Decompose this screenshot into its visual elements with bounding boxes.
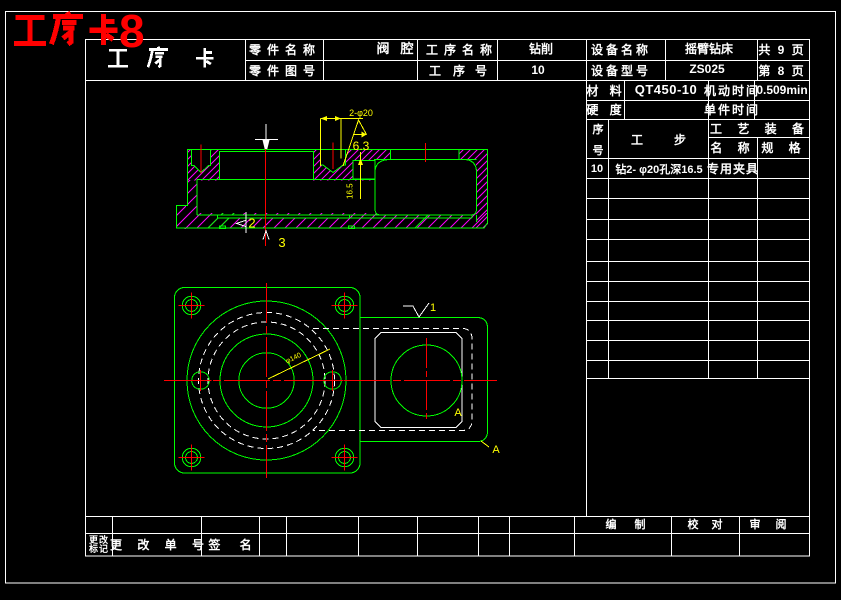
svg-text:零件图号: 零件图号 — [248, 63, 321, 78]
svg-text:摇臂钻床: 摇臂钻床 — [685, 41, 734, 56]
svg-text:10: 10 — [531, 63, 545, 77]
svg-text:16.5: 16.5 — [346, 183, 355, 199]
svg-text:A: A — [454, 407, 462, 419]
svg-text:序: 序 — [453, 63, 465, 78]
svg-text:10: 10 — [591, 163, 603, 175]
svg-text:号: 号 — [593, 144, 604, 157]
svg-text:单件时间: 单件时间 — [704, 102, 760, 117]
svg-text:工 艺 装 备: 工 艺 装 备 — [710, 121, 810, 136]
svg-text:制: 制 — [635, 517, 646, 531]
svg-text:编: 编 — [606, 517, 617, 531]
svg-text:专用夹具: 专用夹具 — [707, 161, 759, 176]
svg-text:序: 序 — [593, 122, 604, 136]
svg-text:3: 3 — [278, 235, 285, 250]
svg-text:第 8 页: 第 8 页 — [758, 63, 805, 78]
svg-text:共 9 页: 共 9 页 — [758, 42, 805, 57]
svg-text:QT450-10: QT450-10 — [635, 82, 698, 97]
svg-text:对: 对 — [712, 517, 723, 531]
svg-text:2-φ20: 2-φ20 — [349, 108, 373, 118]
svg-text:号: 号 — [475, 63, 487, 78]
svg-text:标记: 标记 — [88, 543, 109, 554]
svg-text:A: A — [492, 444, 500, 456]
svg-text:腔: 腔 — [399, 41, 413, 56]
svg-text:硬 度: 硬 度 — [586, 102, 625, 117]
svg-text:签 名: 签 名 — [207, 537, 259, 552]
svg-text:工序名称: 工序名称 — [426, 42, 498, 57]
svg-text:钻2- φ20孔深16.5: 钻2- φ20孔深16.5 — [615, 162, 702, 176]
svg-text:阅: 阅 — [776, 517, 787, 531]
svg-text:机动时间: 机动时间 — [704, 83, 760, 98]
svg-text:0.509min: 0.509min — [756, 83, 807, 97]
svg-text:设备型号: 设备型号 — [591, 63, 651, 78]
svg-text:6.3: 6.3 — [353, 139, 370, 153]
svg-text:阀: 阀 — [376, 41, 389, 56]
svg-text:钻削: 钻削 — [529, 41, 553, 56]
svg-text:更 改 单 号: 更 改 单 号 — [110, 537, 210, 552]
svg-text:步: 步 — [674, 132, 686, 147]
svg-text:规 格: 规 格 — [761, 140, 806, 155]
svg-text:零件名称: 零件名称 — [248, 42, 321, 57]
svg-text:1: 1 — [430, 302, 436, 314]
svg-text:审: 审 — [750, 517, 761, 531]
svg-text:材 料: 材 料 — [585, 83, 625, 98]
svg-text:设备名称: 设备名称 — [591, 42, 651, 57]
svg-text:工: 工 — [631, 133, 643, 147]
svg-text:工: 工 — [429, 64, 441, 78]
svg-text:名 称: 名 称 — [710, 140, 755, 155]
svg-text:校: 校 — [688, 517, 700, 531]
svg-text:ZS025: ZS025 — [689, 62, 725, 76]
svg-text:2: 2 — [248, 216, 255, 231]
